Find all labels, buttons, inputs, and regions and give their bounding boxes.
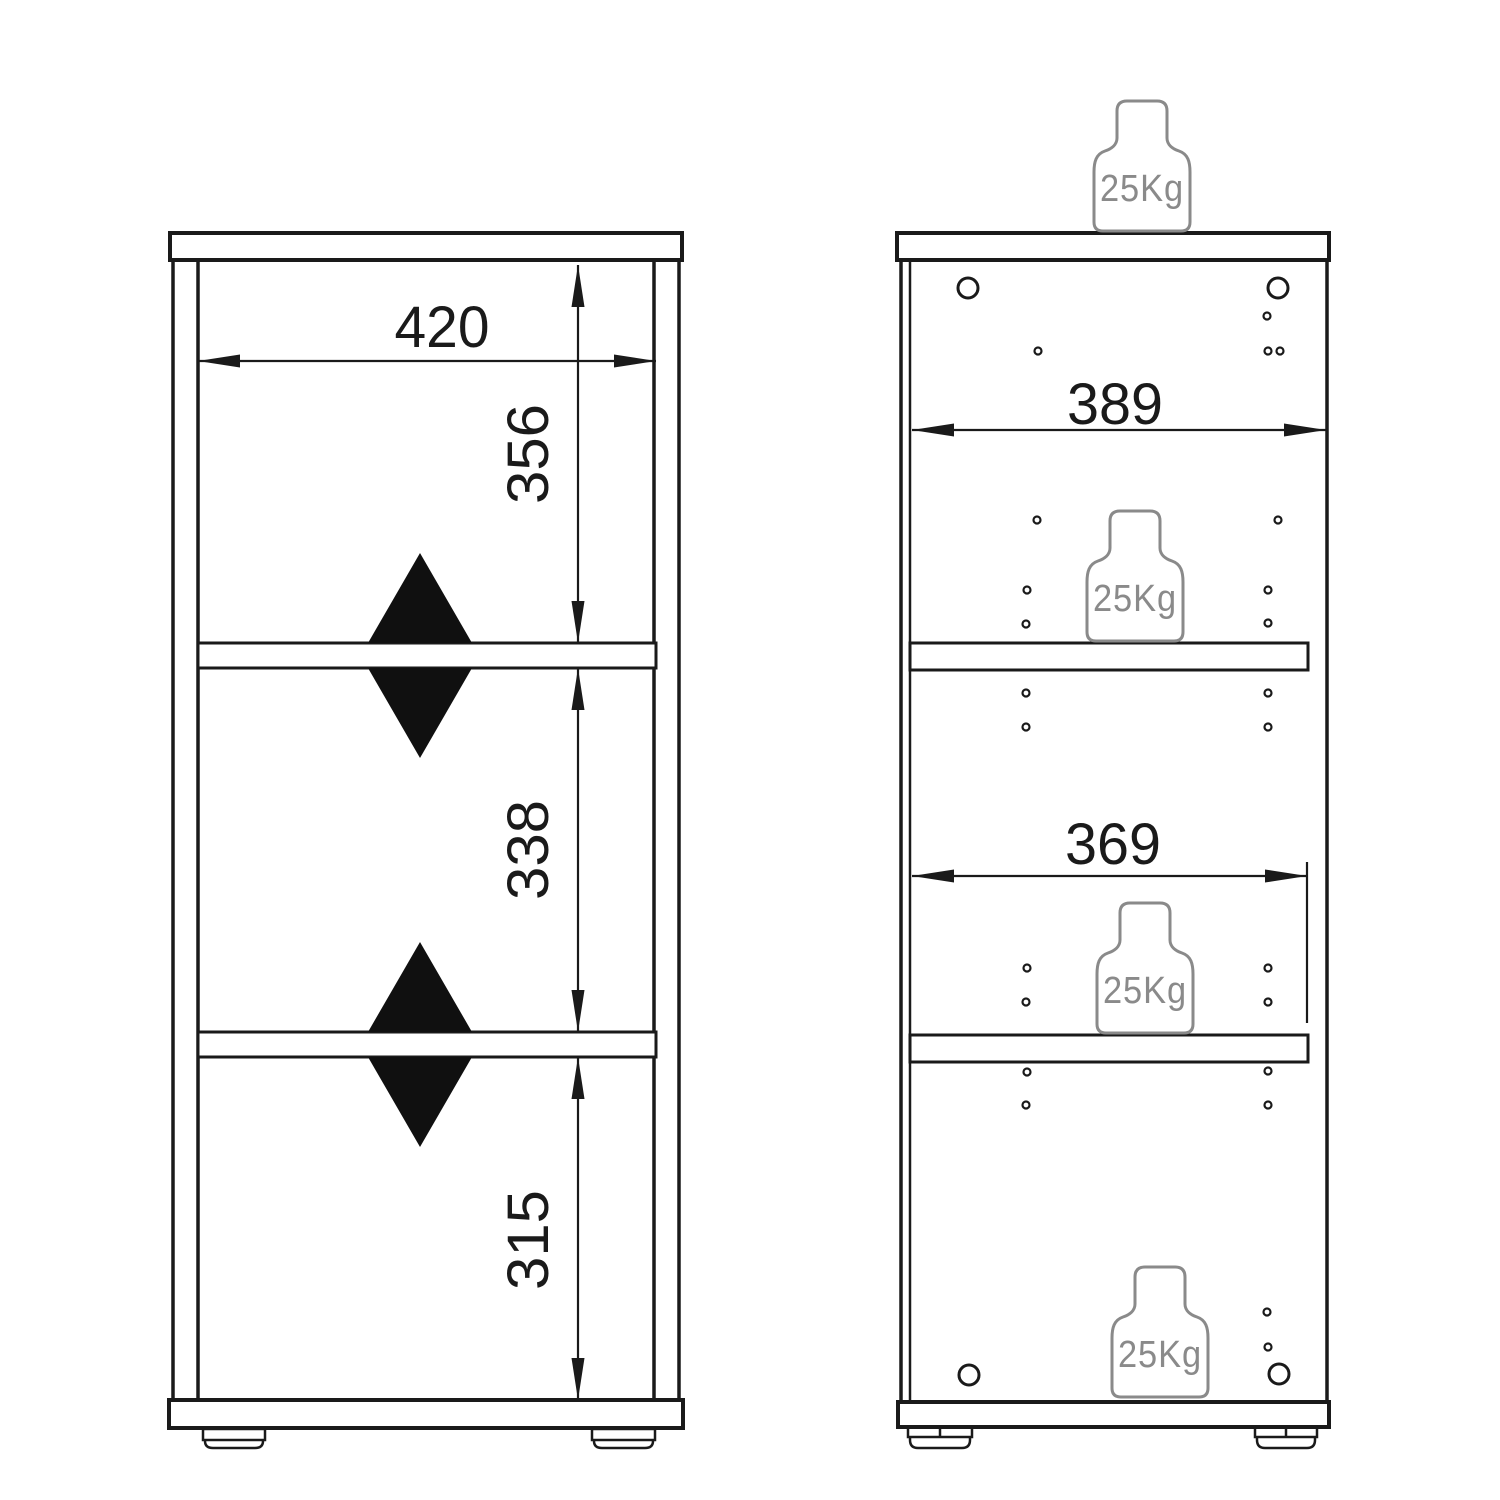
- dimension-bottom-section: 315: [496, 1057, 585, 1400]
- section-upper-shelf: [910, 643, 1308, 670]
- section-lower-shelf: [910, 1035, 1308, 1062]
- cam-hole: [959, 1365, 979, 1385]
- front-upper-shelf: [198, 643, 656, 668]
- front-right-foot: [592, 1429, 655, 1448]
- top-panel: [897, 233, 1329, 260]
- dimension-label-369: 369: [1065, 812, 1161, 877]
- dimension-middle-section: 338: [496, 668, 585, 1032]
- cam-hole: [958, 278, 978, 298]
- bottom-panel: [169, 1400, 683, 1428]
- section-left-foot: [908, 1427, 972, 1448]
- front-left-foot: [203, 1429, 265, 1448]
- weight-icon-top: 25Kg: [1094, 101, 1190, 231]
- bottom-panel: [898, 1402, 1329, 1427]
- load-label-25kg: 25Kg: [1118, 1334, 1202, 1376]
- front-lower-shelf: [198, 1032, 656, 1057]
- section-right-foot: [1255, 1427, 1317, 1448]
- weight-icon-lower-shelf: 25Kg: [1097, 903, 1193, 1033]
- dimension-top-section: 356: [496, 265, 585, 643]
- right-side-panel: [654, 260, 679, 1401]
- load-label-25kg: 25Kg: [1103, 970, 1187, 1012]
- technical-drawing: 420 356 338 315: [0, 0, 1500, 1500]
- cam-hole: [1268, 278, 1288, 298]
- weight-icon-upper-shelf: 25Kg: [1087, 511, 1183, 641]
- cam-hole: [1269, 1364, 1289, 1384]
- dimension-inner-width: 420: [198, 295, 656, 368]
- dimension-label-420: 420: [395, 295, 490, 360]
- cabinet-front-view: 420 356 338 315: [169, 233, 683, 1448]
- load-label-25kg: 25Kg: [1100, 168, 1184, 210]
- top-panel: [170, 233, 682, 260]
- dimension-section-inner-width: 389: [912, 372, 1326, 437]
- weight-icon-bottom: 25Kg: [1112, 1267, 1208, 1397]
- dimension-label-315: 315: [496, 1190, 561, 1290]
- left-side-panel: [173, 260, 198, 1401]
- dimension-label-356: 356: [496, 404, 561, 504]
- load-label-25kg: 25Kg: [1093, 578, 1177, 620]
- dimension-label-389: 389: [1067, 372, 1163, 437]
- cabinet-section-view: 389 369 25Kg 25Kg 25Kg 25Kg: [897, 101, 1329, 1448]
- furniture-dimension-drawing: 420 356 338 315: [0, 0, 1500, 1500]
- dimension-label-338: 338: [496, 800, 561, 900]
